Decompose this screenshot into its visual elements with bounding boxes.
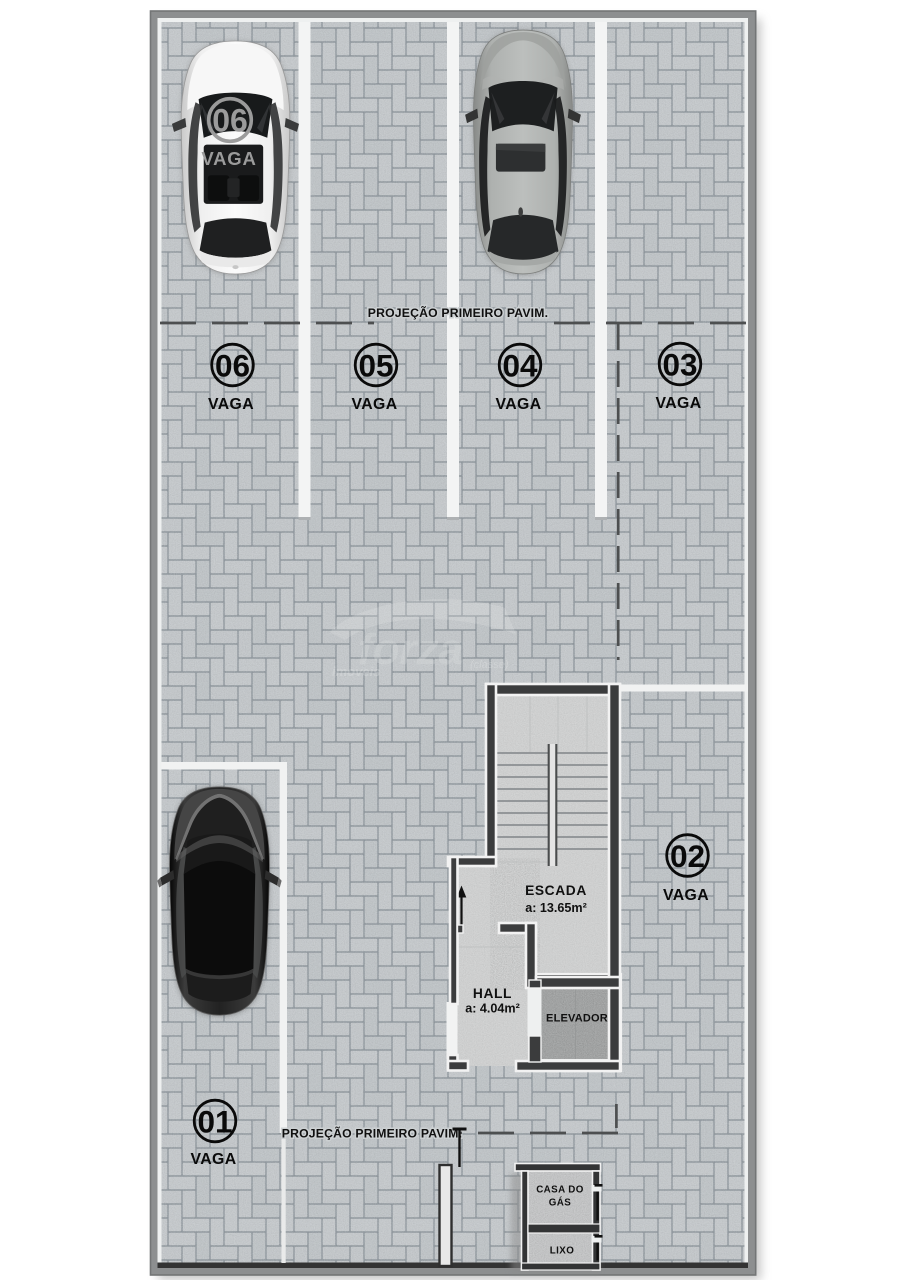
svg-text:06: 06 <box>215 348 250 384</box>
svg-text:VAGA: VAGA <box>201 148 256 169</box>
svg-text:ELEVADOR: ELEVADOR <box>546 1013 608 1025</box>
svg-text:GÁS: GÁS <box>549 1197 571 1209</box>
svg-text:PROJEÇÃO PRIMEIRO PAVIM.: PROJEÇÃO PRIMEIRO PAVIM. <box>282 1126 462 1141</box>
svg-text:imoveis: imoveis <box>332 664 380 679</box>
svg-text:CASA DO: CASA DO <box>536 1185 584 1196</box>
svg-text:VAGA: VAGA <box>208 396 254 413</box>
svg-text:VAGA: VAGA <box>663 887 709 904</box>
svg-text:VAGA: VAGA <box>495 396 541 413</box>
svg-text:(classe): (classe) <box>470 659 509 671</box>
svg-text:PROJEÇÃO PRIMEIRO PAVIM.: PROJEÇÃO PRIMEIRO PAVIM. <box>368 305 548 320</box>
svg-text:01: 01 <box>197 1104 232 1140</box>
svg-text:a: 4.04m²: a: 4.04m² <box>465 1002 520 1016</box>
svg-text:03: 03 <box>662 347 697 383</box>
svg-text:HALL: HALL <box>473 986 512 1001</box>
svg-text:05: 05 <box>358 348 393 384</box>
svg-text:ESCADA: ESCADA <box>525 883 587 898</box>
svg-text:02: 02 <box>670 838 705 874</box>
svg-text:LIXO: LIXO <box>550 1246 574 1257</box>
svg-text:VAGA: VAGA <box>190 1151 236 1168</box>
svg-text:04: 04 <box>502 348 538 384</box>
svg-text:VAGA: VAGA <box>351 396 397 413</box>
svg-text:a: 13.65m²: a: 13.65m² <box>525 901 587 915</box>
svg-text:06: 06 <box>212 103 248 139</box>
svg-text:VAGA: VAGA <box>655 395 701 412</box>
